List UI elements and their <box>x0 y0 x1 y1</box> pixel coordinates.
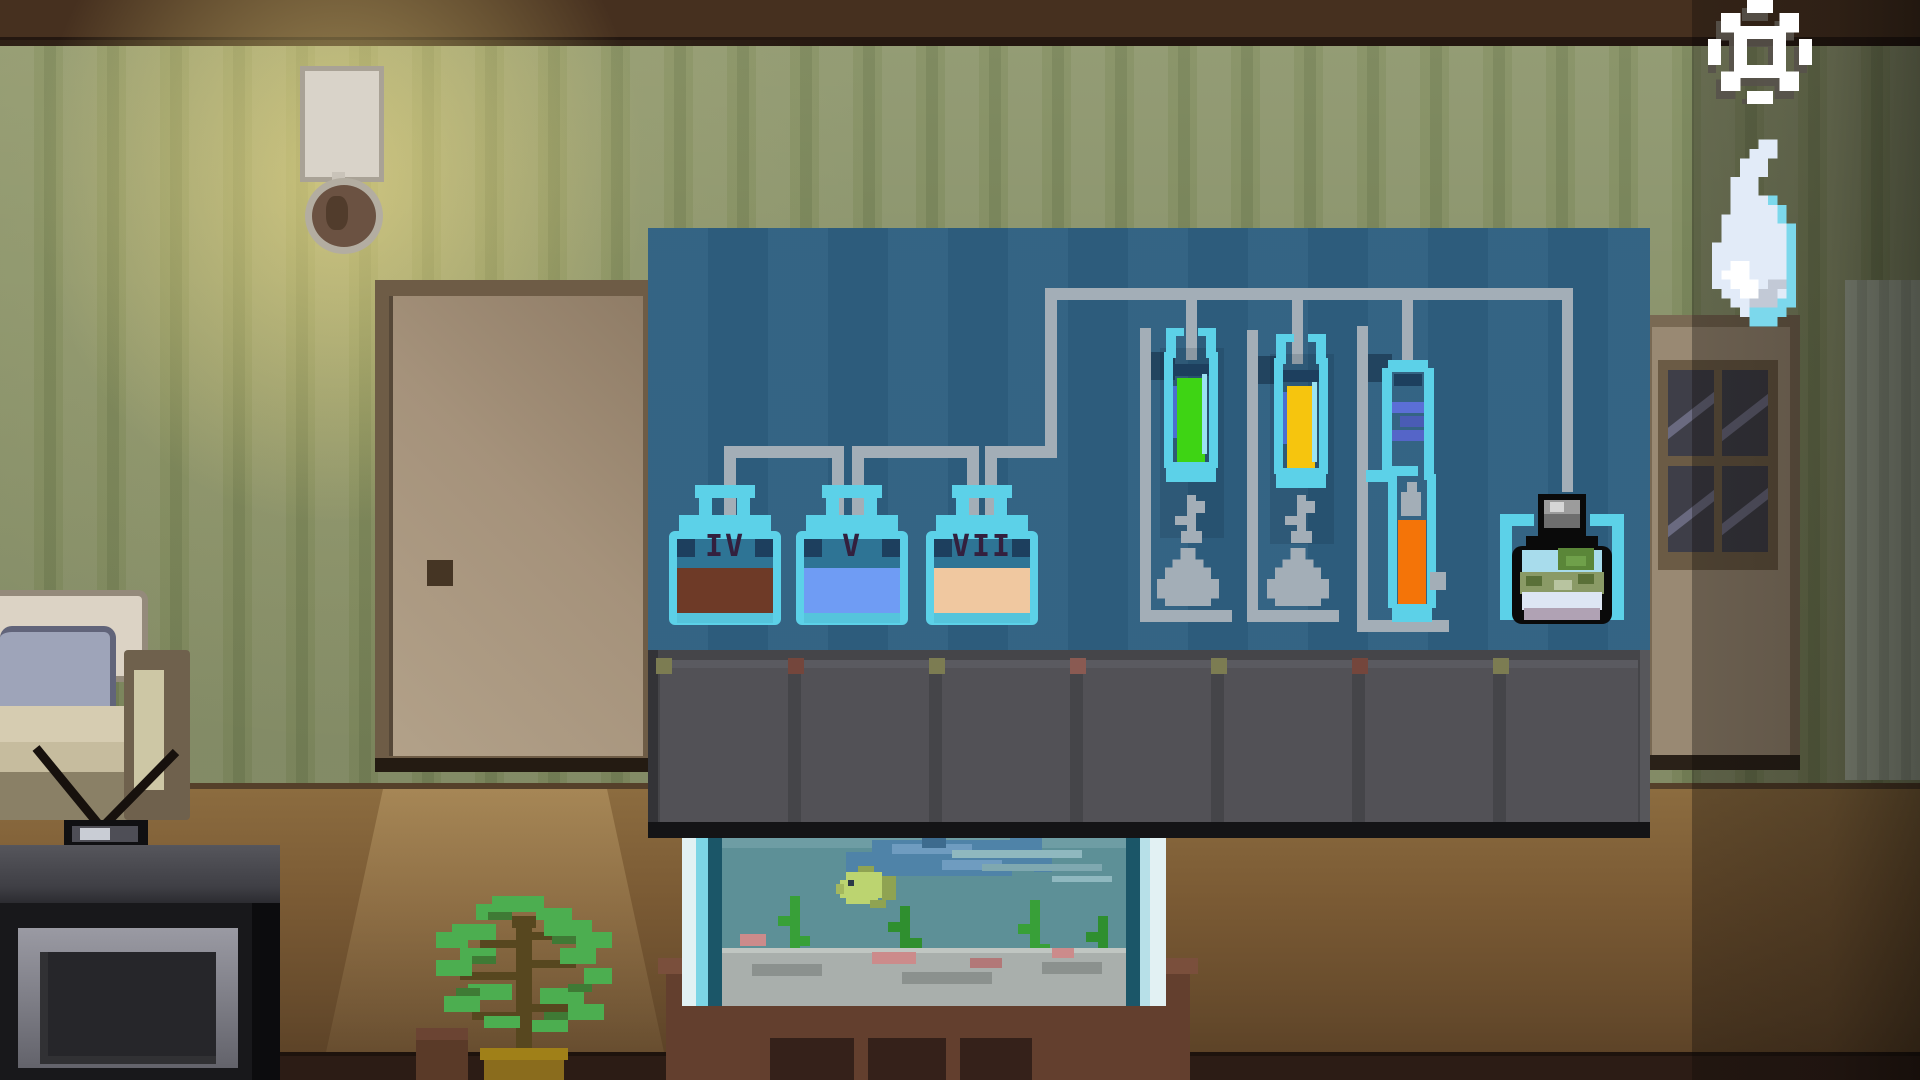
valve-icon[interactable] <box>1282 495 1318 549</box>
flask-icon[interactable] <box>1266 548 1330 606</box>
condenser-side <box>1382 368 1392 480</box>
aquarium[interactable] <box>682 836 1166 1006</box>
condenser-top <box>1388 360 1428 372</box>
tube-glass <box>1319 358 1328 474</box>
jar-bottom-band <box>677 613 773 623</box>
tv-side <box>252 903 280 1080</box>
wall-lamp[interactable] <box>296 62 382 248</box>
tube-glass <box>1164 352 1173 468</box>
tube-cap <box>1166 462 1216 482</box>
condenser-coil <box>1400 416 1424 427</box>
bottle-mottle <box>1526 576 1542 586</box>
condenser-coil <box>1392 402 1424 413</box>
pipe <box>1045 288 1573 300</box>
door-left[interactable] <box>375 280 653 772</box>
cabinet-tab <box>929 658 945 674</box>
bottle-bracket <box>1612 518 1624 620</box>
gravel-shade <box>1042 962 1102 974</box>
condenser-opening <box>1394 374 1422 386</box>
lamp-bracket-core <box>326 196 348 230</box>
pink-coral <box>970 958 1002 968</box>
cabinet[interactable] <box>648 648 1650 838</box>
tube-opening <box>1283 370 1319 382</box>
cabinet-door[interactable] <box>1506 660 1638 828</box>
condenser[interactable] <box>1382 360 1434 480</box>
tube-cap <box>1276 468 1326 488</box>
bottle-mid <box>1520 572 1604 594</box>
jar-label: VII <box>926 531 1038 563</box>
tube-glass <box>1274 358 1283 474</box>
station-rail <box>1140 328 1151 622</box>
tank-accent-left <box>696 836 708 1006</box>
jar-V[interactable]: V <box>796 485 908 625</box>
test-tube-yellow[interactable] <box>1274 334 1328 488</box>
water-streak <box>982 864 1102 871</box>
stand-divider <box>946 1038 960 1080</box>
condenser-side <box>1424 368 1434 480</box>
station-rail <box>1140 610 1232 622</box>
tube-liquid <box>1177 378 1205 462</box>
chemistry-panel[interactable]: IV V VII <box>648 228 1650 650</box>
water-streak <box>952 850 1082 858</box>
lamp-shade <box>300 66 384 182</box>
cabinet-door[interactable] <box>1083 660 1211 828</box>
cabinet-tab <box>656 658 672 674</box>
tank-glass-left <box>682 836 696 1006</box>
jar-bottom-band <box>934 613 1030 623</box>
bottle-cork-low <box>1544 514 1580 528</box>
stand-divider <box>854 1038 868 1080</box>
tank-accent-right <box>1140 836 1150 1006</box>
cabinet-tab <box>1211 658 1227 674</box>
green-fish-icon[interactable] <box>830 864 902 910</box>
bottle-cork-shine <box>1550 502 1564 512</box>
jar-bottom-band <box>804 613 900 623</box>
jar-label: IV <box>669 531 781 563</box>
stand-panel <box>770 1038 1032 1080</box>
bottle-bracket <box>1500 518 1512 620</box>
pink-coral <box>872 952 916 964</box>
gravel-shade <box>752 964 822 976</box>
tank-glass-right <box>1150 836 1166 1006</box>
door-left-knob[interactable] <box>427 560 453 586</box>
tube-glass <box>1388 474 1397 608</box>
flask-icon[interactable] <box>1156 548 1220 606</box>
pipe <box>852 446 979 458</box>
tank-water <box>722 836 1126 1006</box>
station-rail <box>1247 330 1258 622</box>
test-tube-green[interactable] <box>1164 328 1218 482</box>
tube-highlight <box>1202 374 1207 454</box>
holder-stub <box>1430 572 1446 590</box>
tube-glass <box>1209 352 1218 468</box>
cabinet-bottom <box>648 822 1650 838</box>
cabinet-tab <box>1493 658 1509 674</box>
pipe <box>1562 298 1573 492</box>
pipe <box>1045 288 1057 458</box>
water-streak <box>1052 876 1112 882</box>
station-rail <box>1247 610 1339 622</box>
jar-IV[interactable]: IV <box>669 485 781 625</box>
tube-cap <box>1392 604 1432 622</box>
cabinet-tab <box>788 658 804 674</box>
tv[interactable] <box>0 736 284 1080</box>
valve-icon[interactable] <box>1172 495 1208 549</box>
pink-coral <box>740 934 766 946</box>
door-left-threshold <box>375 758 653 772</box>
cabinet-door[interactable] <box>1365 660 1493 828</box>
pink-coral <box>1052 948 1074 958</box>
cabinet-door[interactable] <box>1224 660 1352 828</box>
bottle-mottle <box>1578 574 1594 584</box>
bottle-herb <box>1566 556 1586 566</box>
cabinet-door[interactable] <box>660 660 788 828</box>
cabinet-door[interactable] <box>801 660 929 828</box>
gravel-shade <box>902 972 992 984</box>
jar-liquid <box>804 568 900 613</box>
cabinet-left-edge <box>648 648 658 838</box>
potted-plant[interactable] <box>424 892 620 1080</box>
door-left-surface <box>389 296 643 756</box>
game-scene: IV V VII <box>0 0 1920 1080</box>
jar-label: V <box>796 531 908 563</box>
tube-highlight <box>1312 382 1317 462</box>
condenser-coil <box>1392 430 1424 441</box>
potion-bottle[interactable] <box>1500 494 1624 628</box>
bottle-mottle <box>1554 580 1572 590</box>
pipe <box>1402 298 1413 361</box>
tv-screen[interactable] <box>40 952 216 1064</box>
jar-VII[interactable]: VII <box>926 485 1038 625</box>
tube-liquid <box>1287 386 1315 470</box>
test-tube-orange[interactable] <box>1388 466 1436 622</box>
cabinet-tab <box>1352 658 1368 674</box>
flame-drop-icon[interactable] <box>1712 138 1824 328</box>
tube-clamp <box>1401 492 1421 516</box>
tank-frame-right <box>1126 836 1140 1006</box>
jar-liquid <box>934 568 1030 613</box>
bottle-base <box>1524 608 1600 620</box>
jar-liquid <box>677 568 773 613</box>
tube-liquid <box>1398 520 1426 604</box>
gear-icon[interactable] <box>1708 0 1812 104</box>
tank-frame-left <box>708 836 722 1006</box>
antenna-base-shine <box>80 828 110 840</box>
pipe <box>724 446 844 458</box>
tv-top <box>0 845 280 905</box>
cabinet-tab <box>1070 658 1086 674</box>
cabinet-right-edge <box>1640 648 1650 838</box>
cabinet-door[interactable] <box>942 660 1070 828</box>
plant-icon <box>424 892 620 1080</box>
